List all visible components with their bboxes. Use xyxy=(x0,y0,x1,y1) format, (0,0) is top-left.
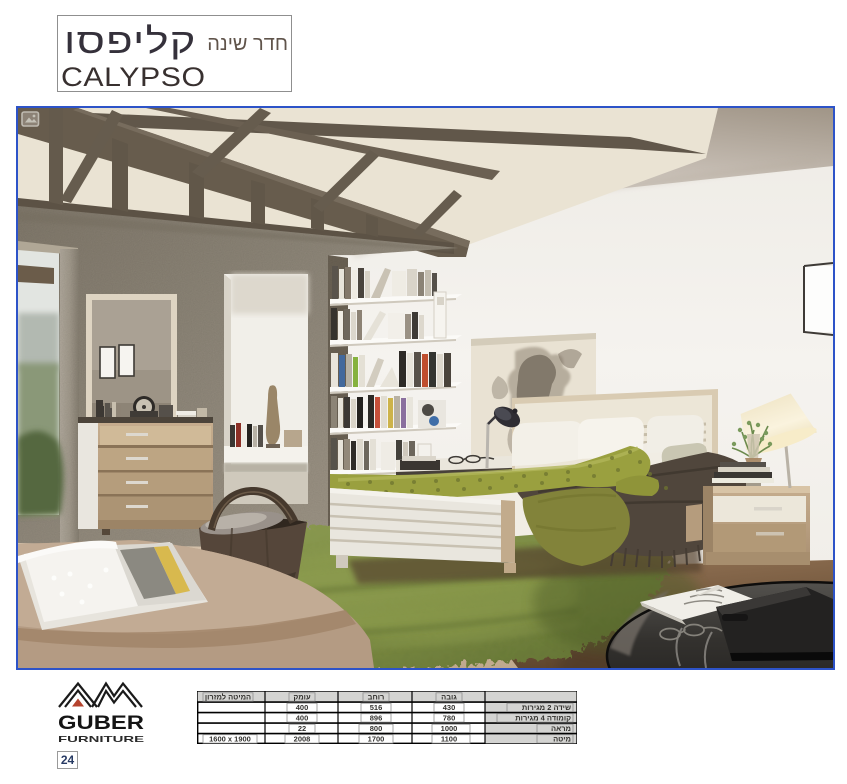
svg-text:שידה 2 מגירות: שידה 2 מגירות xyxy=(522,703,571,712)
svg-text:מראה: מראה xyxy=(551,724,571,733)
svg-text:780: 780 xyxy=(443,714,456,723)
svg-text:רוחב: רוחב xyxy=(368,693,385,702)
svg-text:400: 400 xyxy=(296,714,309,723)
svg-text:1000: 1000 xyxy=(441,724,458,733)
svg-text:430: 430 xyxy=(443,703,456,712)
svg-text:מיטה: מיטה xyxy=(553,735,571,744)
svg-text:800: 800 xyxy=(370,724,383,733)
svg-text:22: 22 xyxy=(298,724,306,733)
svg-text:קומודה 4 מגירות: קומודה 4 מגירות xyxy=(515,714,571,723)
svg-text:516: 516 xyxy=(370,703,383,712)
svg-text:עומק: עומק xyxy=(293,693,311,702)
svg-text:2008: 2008 xyxy=(294,735,311,744)
svg-text:FURNITURE: FURNITURE xyxy=(58,734,145,744)
svg-text:גובה: גובה xyxy=(441,693,457,702)
svg-text:400: 400 xyxy=(296,703,309,712)
svg-text:1700: 1700 xyxy=(368,735,385,744)
svg-text:896: 896 xyxy=(370,714,383,723)
svg-text:1100: 1100 xyxy=(441,735,457,744)
svg-text:המיטה למזרון: המיטה למזרון xyxy=(205,693,251,702)
svg-text:1600 x 1900: 1600 x 1900 xyxy=(209,735,251,744)
svg-text:GUBER: GUBER xyxy=(58,713,144,734)
